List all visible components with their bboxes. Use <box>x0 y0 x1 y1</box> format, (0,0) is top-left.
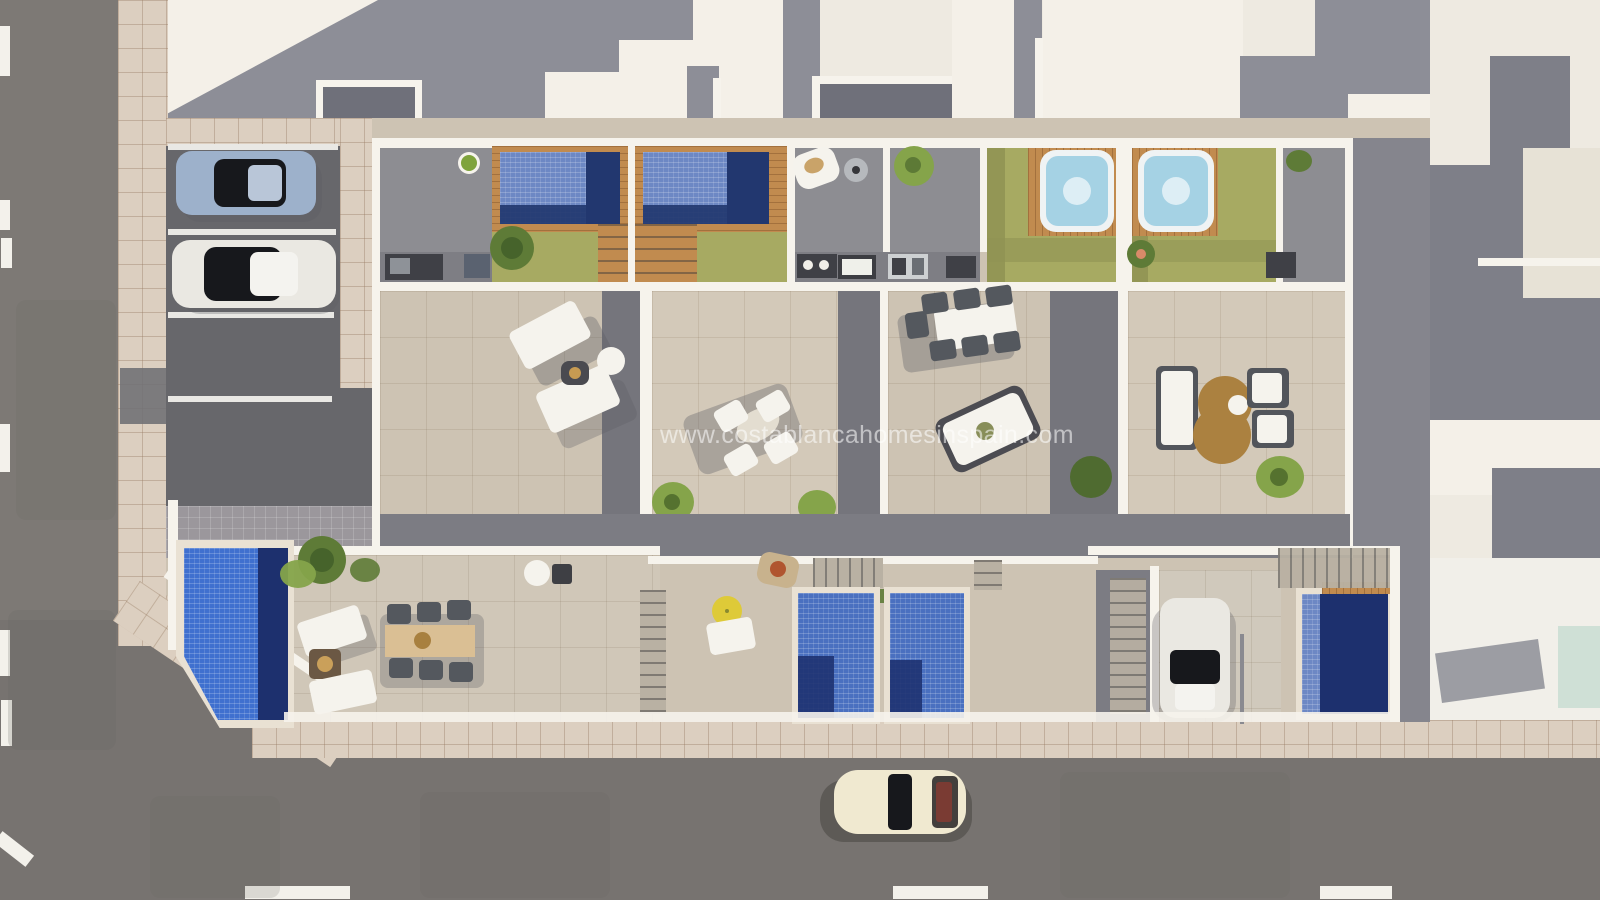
side-pouf <box>597 347 625 375</box>
unit4-wall-right <box>1390 554 1400 722</box>
road-patch-2 <box>1060 772 1290 898</box>
road-patch-4 <box>16 300 116 520</box>
rug-circle2 <box>1193 406 1251 464</box>
poolB-navy-bottom <box>643 205 727 224</box>
lane-dash-4 <box>0 424 10 472</box>
dining3-chair-3 <box>985 284 1014 307</box>
corner-plant2 <box>350 558 380 582</box>
poolB-lawn <box>697 232 787 282</box>
watermark-url: www.costablancahomesinspain.com <box>660 421 1074 450</box>
plant-unit4 <box>1286 150 1312 172</box>
corner-chair-6 <box>449 662 473 682</box>
architectural-render: www.costablancahomesinspain.com <box>0 0 1600 900</box>
front-wall-bottom <box>284 712 1400 722</box>
upper-strip-bottom-wall <box>372 282 1352 291</box>
fire-bowl-center <box>852 166 860 174</box>
coffee-table-round <box>1228 395 1248 415</box>
poolC-navy <box>798 656 834 718</box>
rose-bush-flower <box>1136 249 1146 259</box>
lane-dash-3 <box>1 238 12 268</box>
right-gray-mid <box>1492 468 1600 560</box>
wall-unit3-lawn <box>980 146 987 252</box>
road-patch-3 <box>150 796 280 898</box>
road-car-rear-red <box>936 782 952 822</box>
dining3-chair-5 <box>961 334 990 357</box>
poolA-tree-core <box>501 237 523 259</box>
sink-dot2 <box>819 260 829 270</box>
corner-chair-5 <box>419 660 443 680</box>
parking-right-lower <box>340 388 372 506</box>
dining3-endchair <box>904 311 929 340</box>
car-driveway-glass <box>1170 650 1220 684</box>
wall-poolA-poolB <box>628 146 635 282</box>
white-pouf-corner <box>524 560 550 586</box>
poolE-navy <box>1320 594 1388 714</box>
stairs-unit3-small <box>974 560 1002 590</box>
storage-box-unit1 <box>464 254 490 278</box>
armchair1 <box>1252 373 1282 403</box>
roof-a-shadow-step2 <box>545 0 619 72</box>
parking-right-tiles <box>340 118 372 388</box>
poolB-steps <box>635 224 697 282</box>
palm-terrace4-right-core <box>1270 468 1288 486</box>
corner-chair-4 <box>389 658 413 678</box>
corner-chair-2 <box>417 602 441 622</box>
stairs-unit4-top <box>1278 548 1390 588</box>
bbq-unit3-grill <box>892 258 906 275</box>
lane-dash-2 <box>0 200 10 230</box>
sofa-cushions <box>1161 371 1193 445</box>
stairs-unit2 <box>640 590 666 714</box>
dark-box-corner <box>552 564 572 584</box>
driveway-curb-cut <box>120 368 168 424</box>
lane-dash-1 <box>0 26 10 76</box>
plant-pot <box>461 155 477 171</box>
right-wall-strip <box>1478 258 1600 266</box>
parking-line-2 <box>168 229 336 235</box>
parking-line-4 <box>168 396 332 402</box>
corner-chair-1 <box>387 604 411 624</box>
wall-terrace1-2 <box>640 291 652 520</box>
fire-table-flame <box>569 367 581 379</box>
storage-unit4 <box>1266 252 1296 278</box>
hot-tubA-center <box>1063 177 1091 205</box>
road-patch-5 <box>8 610 116 750</box>
parking-line-1 <box>168 144 338 150</box>
palm-unit3-core <box>905 157 921 173</box>
palm-terrace2-left-core <box>664 494 680 510</box>
car-driveway-roof <box>1175 684 1215 710</box>
right-pale-pool <box>1558 626 1600 708</box>
corner-firepit-fire <box>317 656 333 672</box>
steps-unit2-top <box>813 558 883 588</box>
hot-tubB-center <box>1162 177 1190 205</box>
corner-chair-3 <box>447 600 471 620</box>
poolA-navy-bottom <box>500 205 586 224</box>
center-dash-3 <box>1320 886 1392 899</box>
building-wall-left <box>372 138 380 562</box>
palm-terrace4-left <box>1070 456 1112 498</box>
sink-dot1 <box>803 260 813 270</box>
corner-plant1 <box>280 560 316 588</box>
car-blue-roof <box>248 165 282 201</box>
stairsA <box>598 224 630 282</box>
skylight-glass <box>842 259 872 275</box>
stairs-unit4 <box>1110 578 1146 714</box>
wall-terrace3-4 <box>1118 291 1128 520</box>
corner-dining-table-hole <box>414 632 431 649</box>
unit4-corridor-right <box>1400 554 1430 722</box>
wall-unit2-unit3-upper <box>883 146 890 252</box>
pole-line <box>1240 634 1244 724</box>
storage-unit3 <box>946 256 976 278</box>
bbq-unit1-top <box>390 258 410 274</box>
armchair2 <box>1257 415 1287 443</box>
bottom-sidewalk <box>252 720 1600 758</box>
center-dash-2 <box>893 886 988 899</box>
dining3-chair-4 <box>929 338 958 361</box>
wall-terrace4-right <box>1345 138 1353 558</box>
right-roof-gray3 <box>1512 298 1600 423</box>
poolD-navy <box>890 660 922 718</box>
parasol-pole <box>725 609 729 613</box>
car-white-roof <box>250 252 298 296</box>
poolA-navy-right <box>586 152 620 224</box>
dining3-chair-6 <box>993 330 1022 353</box>
dining3-chair-2 <box>953 287 982 310</box>
bbq-unit3-grill2 <box>912 258 924 275</box>
road-car-windshield <box>888 774 912 830</box>
right-corridor <box>1353 138 1430 558</box>
lawnC-shadow-bottom <box>987 238 1116 262</box>
road-patch-1 <box>420 792 610 898</box>
wall-terrace2-3 <box>880 291 888 520</box>
poolE-tiles <box>1302 594 1320 714</box>
shadow-band2 <box>838 291 880 520</box>
poolB-navy-right <box>727 152 769 224</box>
left-sidewalk <box>118 0 168 646</box>
